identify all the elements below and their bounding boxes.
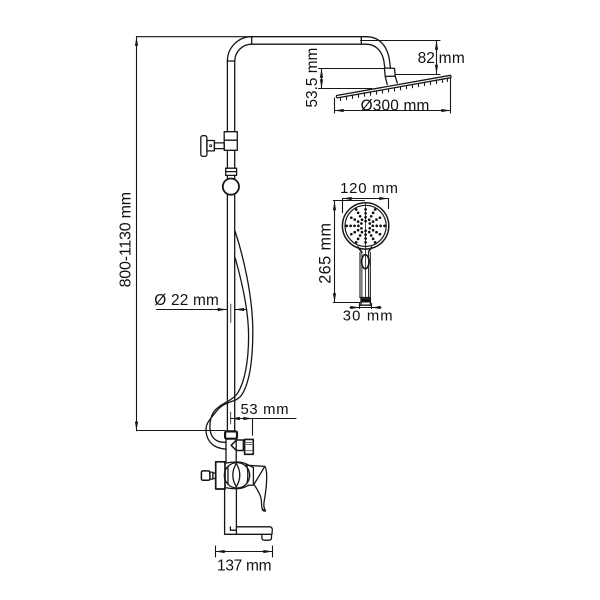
svg-text:120 mm: 120 mm	[340, 181, 399, 197]
svg-text:82: 82	[418, 50, 435, 67]
svg-text:Ø 22 mm: Ø 22 mm	[154, 292, 219, 309]
svg-text:30 mm: 30 mm	[343, 309, 394, 325]
svg-text:265 mm: 265 mm	[316, 223, 334, 284]
svg-text:mm: mm	[439, 50, 466, 67]
svg-text:53.5 mm: 53.5 mm	[304, 48, 321, 108]
svg-text:800-1130 mm: 800-1130 mm	[118, 192, 135, 287]
svg-text:Ø300 mm: Ø300 mm	[361, 97, 430, 114]
svg-text:53 mm: 53 mm	[241, 402, 290, 418]
svg-text:137 mm: 137 mm	[217, 558, 271, 575]
